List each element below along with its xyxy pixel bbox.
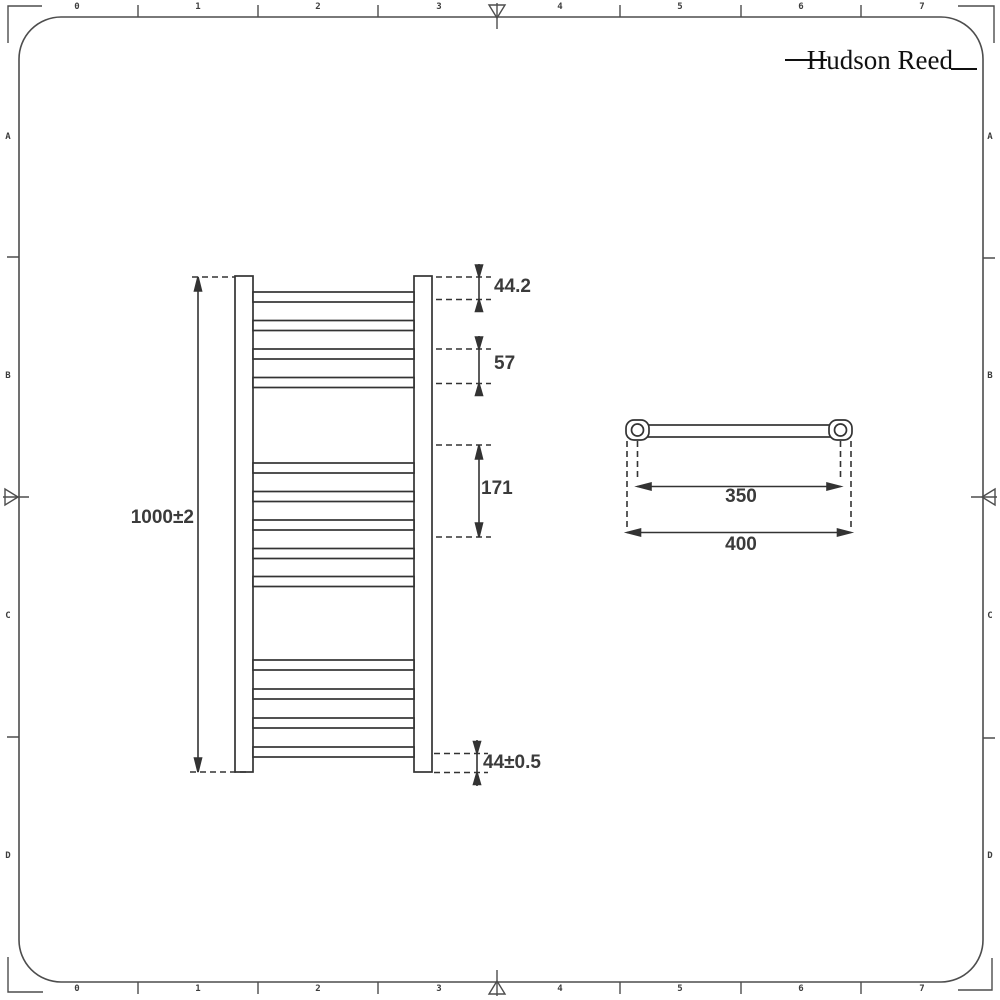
centring-mark-bottom: [489, 970, 505, 996]
ruler-left-d: D: [2, 851, 14, 862]
ruler-left-b: B: [2, 371, 14, 382]
drawing-sheet: Hudson Reed 1000±2 44.2 57 171 44±0.5 35…: [0, 0, 1000, 1000]
front-view-radiator: [235, 276, 432, 772]
dim-label-bracket-centres: 350: [703, 487, 779, 507]
top-view-rail: [626, 420, 852, 440]
dim-bottom-offset: [434, 740, 488, 786]
right-rail: [414, 276, 432, 772]
logo-right-dash: [951, 68, 977, 70]
centring-mark-top: [489, 3, 505, 29]
ruler-top-0: 0: [69, 2, 85, 13]
rail-bar: [628, 425, 850, 437]
ruler-right-c: C: [984, 611, 996, 622]
ruler-left-c: C: [2, 611, 14, 622]
left-rail: [235, 276, 253, 772]
brand-logo: Hudson Reed: [807, 44, 953, 76]
right-bracket-hole: [835, 424, 847, 436]
dim-label-height: 1000±2: [110, 508, 194, 528]
dim-label-bottom-offset: 44±0.5: [483, 753, 541, 773]
ruler-top-6: 6: [793, 2, 809, 13]
ruler-bottom-0: 0: [69, 984, 85, 995]
corner-bracket-bottom-right: [958, 958, 992, 990]
logo-text: Hudson Reed: [807, 45, 953, 75]
dim-top-offset: [436, 264, 491, 312]
dim-label-mid-section: 171: [481, 479, 513, 499]
ruler-bottom-6: 6: [793, 984, 809, 995]
rungs-middle-group: [253, 463, 414, 587]
logo-left-dash: [785, 59, 827, 61]
ruler-top-1: 1: [190, 2, 206, 13]
ruler-left-a: A: [2, 132, 14, 143]
dim-label-rung-pitch: 57: [494, 354, 515, 374]
left-bracket-hole: [632, 424, 644, 436]
drawing-linework: [0, 0, 1000, 1000]
ruler-top-7: 7: [914, 2, 930, 13]
ruler-bottom-3: 3: [431, 984, 447, 995]
centring-mark-left: [3, 489, 29, 505]
ruler-top-5: 5: [672, 2, 688, 13]
ruler-bottom-5: 5: [672, 984, 688, 995]
dim-label-overall-width: 400: [703, 535, 779, 555]
rungs-bottom-group: [253, 660, 414, 757]
ruler-right-b: B: [984, 371, 996, 382]
ruler-bottom-1: 1: [190, 984, 206, 995]
dim-rung-pitch: [436, 336, 491, 396]
dim-label-top-offset: 44.2: [494, 277, 531, 297]
ruler-bottom-7: 7: [914, 984, 930, 995]
centring-mark-right: [971, 489, 997, 505]
sheet-border: [19, 17, 983, 982]
ruler-top-3: 3: [431, 2, 447, 13]
corner-bracket-top-right: [958, 6, 994, 43]
ruler-marks: [3, 3, 997, 996]
ruler-right-a: A: [984, 132, 996, 143]
rungs-top-group: [253, 292, 414, 388]
ruler-right-d: D: [984, 851, 996, 862]
ruler-top-2: 2: [310, 2, 326, 13]
ruler-top-4: 4: [552, 2, 568, 13]
ruler-bottom-2: 2: [310, 984, 326, 995]
ruler-bottom-4: 4: [552, 984, 568, 995]
